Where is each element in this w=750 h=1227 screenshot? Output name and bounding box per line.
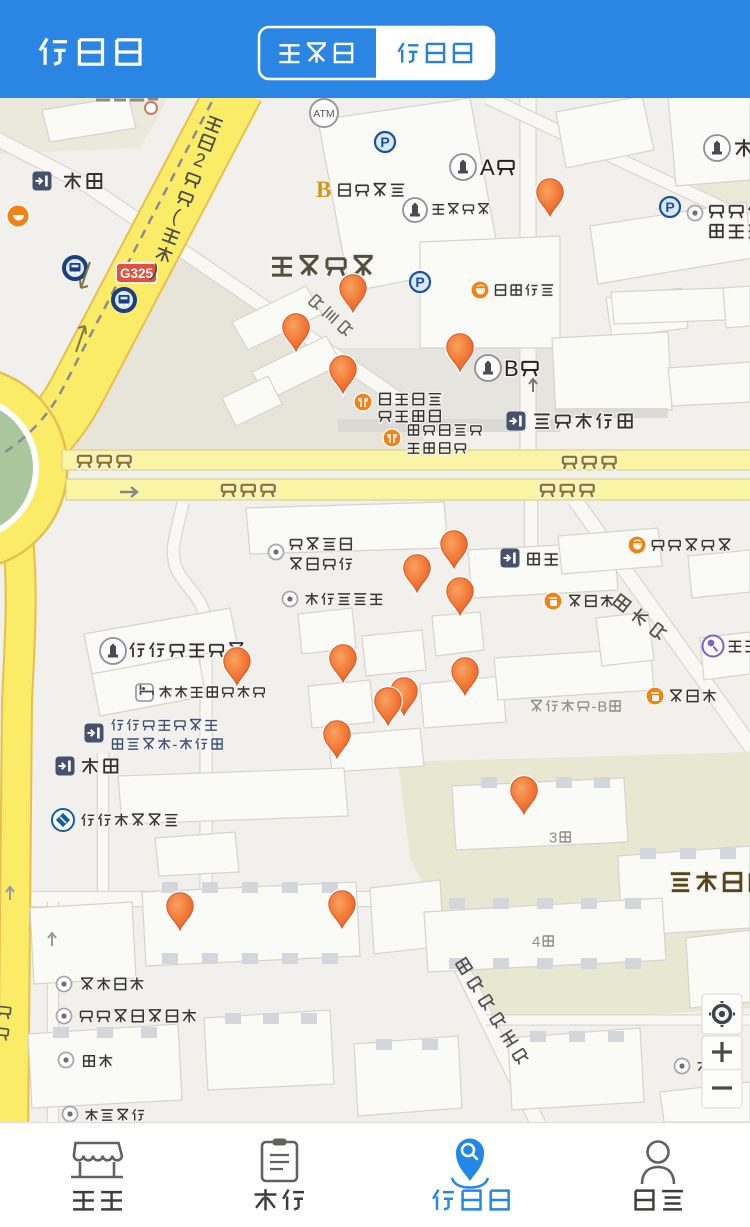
svg-text:ATM: ATM [313, 108, 334, 120]
svg-text:B: B [316, 177, 331, 202]
svg-text:A: A [480, 155, 495, 180]
svg-text:4: 4 [532, 933, 540, 950]
svg-text:P: P [415, 274, 424, 290]
svg-text:3: 3 [549, 829, 557, 846]
svg-text:-: - [172, 736, 177, 753]
svg-text:B: B [597, 698, 607, 715]
svg-text:P: P [380, 134, 389, 150]
svg-text:P: P [665, 199, 674, 215]
svg-text:-: - [591, 698, 596, 715]
svg-text:B: B [504, 356, 519, 381]
